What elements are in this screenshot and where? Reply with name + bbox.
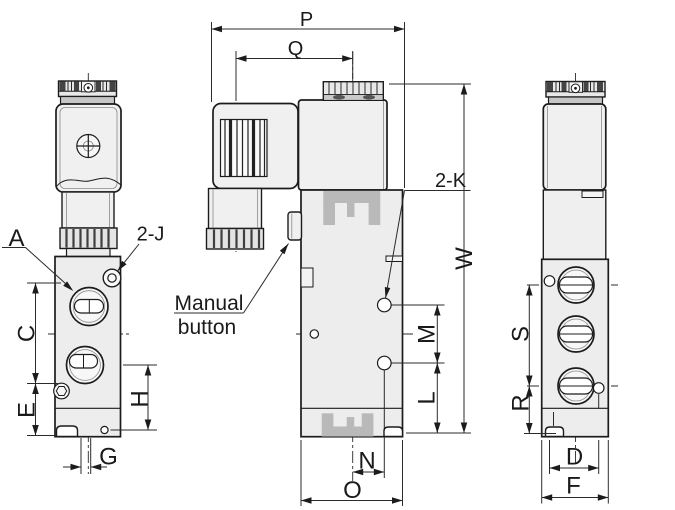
dim-label-q: Q	[288, 38, 304, 60]
dim-label-o: O	[343, 477, 362, 504]
mounting-hole-2k-upper	[378, 298, 392, 312]
dim-label-r: R	[508, 394, 535, 411]
exhaust-notch	[546, 427, 564, 437]
din-connector-front	[213, 104, 298, 189]
phillips-screw-icon	[77, 135, 100, 158]
solenoid-coil	[299, 100, 388, 190]
dim-label-l: L	[414, 391, 441, 404]
dim-label-e: E	[14, 402, 41, 418]
valve-body-left	[54, 257, 121, 437]
dim-label-g: G	[99, 444, 118, 471]
dim-label-n: N	[358, 448, 375, 475]
dim-label-2j: 2-J	[137, 224, 165, 246]
front-view	[207, 52, 414, 481]
mounting-hole-left	[544, 276, 555, 287]
exhaust-notch	[57, 426, 78, 437]
side-notch	[301, 268, 313, 287]
dim-label-f: F	[566, 473, 581, 500]
dim-label-a: A	[8, 225, 24, 252]
adapter-section	[543, 190, 606, 259]
cable-gland-front	[207, 189, 264, 250]
mounting-hole-2k-lower	[378, 356, 392, 370]
manual-button-label-line2: button	[178, 316, 236, 339]
cable-gland-side	[60, 192, 117, 257]
left-side-view	[48, 73, 129, 474]
pilot-hole	[310, 330, 318, 338]
solenoid-coil	[543, 104, 606, 190]
valve-body-front	[301, 190, 403, 478]
exhaust-notch	[384, 427, 403, 437]
valve-dimension-drawing: P Q 2-K W M L N O A 2-J C E H G S R D F …	[0, 0, 675, 510]
hex-socket-hole	[54, 383, 70, 399]
dim-label-d: D	[566, 444, 583, 471]
small-hole	[101, 426, 108, 433]
dim-label-w: W	[451, 247, 478, 270]
port-3	[558, 368, 594, 404]
port-bottom	[67, 347, 104, 384]
manual-button-label-line1: Manual	[175, 292, 244, 315]
dim-label-s: S	[508, 326, 535, 342]
port-top	[70, 288, 108, 326]
dim-label-m: M	[414, 324, 441, 344]
dim-label-h: H	[127, 390, 154, 407]
mounting-hole-right	[593, 383, 604, 394]
coil-cap	[323, 82, 383, 101]
dim-label-p: P	[300, 9, 313, 31]
mounting-hole-2j	[103, 269, 121, 287]
coil-cap	[59, 81, 117, 104]
port-2	[558, 316, 594, 352]
dim-label-2k: 2-K	[435, 170, 467, 192]
manual-button[interactable]	[288, 212, 302, 240]
dim-label-c: C	[14, 325, 41, 342]
clip-tab	[582, 191, 603, 198]
valve-body-right	[542, 259, 609, 436]
coil-cap	[546, 82, 605, 105]
right-side-view	[527, 73, 618, 463]
din-connector-side	[56, 104, 121, 192]
drawing-canvas: P Q 2-K W M L N O A 2-J C E H G S R D F …	[0, 0, 675, 510]
port-1	[558, 267, 594, 303]
clip-tab	[386, 256, 403, 262]
